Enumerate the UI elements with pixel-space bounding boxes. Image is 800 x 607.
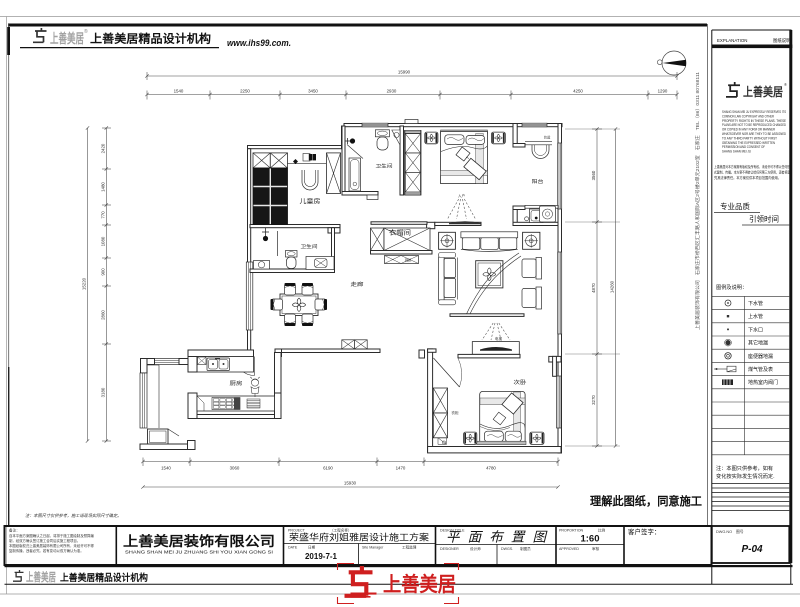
svg-text:其它地漏: 其它地漏 [748, 340, 768, 347]
svg-text:复制传播，违者必究。若有变动以双方确认为准。: 复制传播，违者必究。若有变动以双方确认为准。 [9, 548, 84, 553]
svg-text:DWG.NO: DWG.NO [716, 530, 732, 534]
svg-text:4780: 4780 [486, 466, 496, 471]
svg-text:上善美居精品设计机构: 上善美居精品设计机构 [60, 572, 148, 584]
svg-text:14260: 14260 [610, 280, 615, 293]
svg-text:电视: 电视 [495, 336, 503, 341]
svg-text:PLANS ARE NOT TO BE REPRODUCED: PLANS ARE NOT TO BE REPRODUCED CHANGED [722, 123, 787, 127]
svg-text:上水管: 上水管 [748, 313, 763, 320]
svg-text:770: 770 [100, 211, 105, 219]
svg-text:专业品质: 专业品质 [720, 201, 750, 211]
svg-text:下水口: 下水口 [748, 326, 763, 333]
svg-text:日期: 日期 [308, 545, 316, 550]
svg-text:1080: 1080 [100, 236, 105, 246]
svg-text:4870: 4870 [591, 283, 596, 293]
svg-text:P-04: P-04 [741, 544, 763, 555]
svg-text:PROPORTION: PROPORTION [559, 529, 583, 533]
svg-text:上善美居对本方案拥有版权及所有权，未经许可不得以任何形: 上善美居对本方案拥有版权及所有权，未经许可不得以任何形 [714, 164, 790, 169]
svg-text:煤气管及表: 煤气管及表 [748, 366, 773, 373]
svg-text:厨房: 厨房 [230, 380, 243, 387]
svg-text:审核: 审核 [592, 546, 600, 551]
svg-text:1480: 1480 [100, 182, 105, 192]
svg-text:卫生间: 卫生间 [376, 163, 393, 170]
svg-text:荣盛华府刘姐雅居设计施工方案: 荣盛华府刘姐雅居设计施工方案 [289, 532, 429, 543]
svg-text:究其法律责任。本方案仅供本项目范围内使用。: 究其法律责任。本方案仅供本项目范围内使用。 [714, 175, 781, 180]
svg-text:TO ANY THIRD PARTY WITHOUT FIR: TO ANY THIRD PARTY WITHOUT FIRST [722, 136, 777, 140]
svg-text:1470: 1470 [396, 466, 406, 471]
svg-text:EXPLANATION: EXPLANATION [717, 38, 747, 43]
svg-text:DATE: DATE [288, 546, 298, 550]
svg-text:入户: 入户 [458, 193, 466, 198]
svg-text:下水管: 下水管 [748, 300, 763, 307]
svg-text:15990: 15990 [398, 70, 411, 75]
svg-text:SHANG SHAN MEI JU: SHANG SHAN MEI JU [722, 150, 752, 154]
svg-text:1290: 1290 [658, 89, 668, 94]
svg-text:上善美居: 上善美居 [50, 31, 84, 46]
svg-text:走廊: 走廊 [351, 281, 364, 288]
svg-text:Site Manager: Site Manager [362, 546, 384, 550]
svg-text:上善美居装饰有限公司: 上善美居装饰有限公司 [123, 533, 275, 549]
svg-text:上善美居: 上善美居 [26, 570, 56, 584]
svg-text:3270: 3270 [591, 395, 596, 405]
svg-text:制图员: 制图员 [520, 546, 531, 551]
svg-text:上善美居: 上善美居 [743, 84, 783, 99]
svg-text:图例及说明：: 图例及说明： [716, 283, 747, 291]
svg-text:比例: 比例 [598, 528, 606, 533]
svg-text:次卧: 次卧 [514, 379, 527, 386]
svg-text:备注：: 备注： [9, 528, 20, 533]
svg-text:6190: 6190 [323, 466, 333, 471]
svg-text:制，经双方确认签订施工合同后实施工程项目。: 制，经双方确认签订施工合同后实施工程项目。 [9, 538, 80, 543]
svg-text:衣帽间: 衣帽间 [389, 228, 411, 237]
svg-text:PROPERTY RIGHTS IN THESE PLANS: PROPERTY RIGHTS IN THESE PLANS. THESE [722, 119, 786, 123]
svg-text:WHATSOEVER NOR ARE THEY TO BE: WHATSOEVER NOR ARE THEY TO BE ASSIGNED [722, 132, 787, 136]
svg-text:2420: 2420 [100, 143, 105, 153]
svg-text:上善美居: 上善美居 [383, 572, 456, 596]
svg-text:2930: 2930 [387, 89, 397, 94]
svg-text:变化按实际发生情况而定.: 变化按实际发生情况而定. [716, 472, 775, 480]
svg-text:自本平面方案图确认之日起，将排于施工图绘制及预算编: 自本平面方案图确认之日起，将排于施工图绘制及预算编 [9, 533, 94, 538]
svg-text:COMMON LAW COPYRIGHT AND OTHER: COMMON LAW COPYRIGHT AND OTHER [722, 114, 775, 118]
svg-text:1540: 1540 [174, 89, 184, 94]
svg-text:4250: 4250 [573, 89, 583, 94]
svg-text:鞋柜: 鞋柜 [405, 258, 412, 263]
svg-text:阳台: 阳台 [532, 178, 544, 185]
svg-text:上善美居装饰有限公司 石家庄市桥西区汇丰路人和国际A区2号楼: 上善美居装饰有限公司 石家庄市桥西区汇丰路人和国际A区2号楼2单元2102室 石… [694, 72, 701, 330]
svg-text:900: 900 [100, 268, 105, 276]
svg-text:15930: 15930 [344, 481, 357, 486]
svg-text:OR COPIED IN ANY FORM OR MANNE: OR COPIED IN ANY FORM OR MANNER [722, 128, 776, 132]
svg-text:SHANG SHAN MEI JU EXPRESSLY RE: SHANG SHAN MEI JU EXPRESSLY RESERVES ITS [722, 110, 786, 114]
svg-text:1:60: 1:60 [580, 534, 599, 545]
svg-text:3180: 3180 [100, 387, 105, 397]
svg-text:儿童房: 儿童房 [300, 198, 321, 206]
svg-text:设计师: 设计师 [470, 546, 481, 551]
svg-text:3560: 3560 [591, 170, 596, 180]
svg-text:工程监理: 工程监理 [402, 545, 417, 550]
svg-text:®: ® [84, 28, 88, 35]
svg-text:SHANG SHAN MEI JU ZHUANG SHI Y: SHANG SHAN MEI JU ZHUANG SHI YOU XIAN GO… [125, 550, 273, 555]
svg-text:APPROVED: APPROVED [559, 547, 579, 551]
svg-text:2250: 2250 [240, 89, 250, 94]
svg-text:2860: 2860 [100, 310, 105, 320]
svg-text:PERMISSION AND CONSENT OF: PERMISSION AND CONSENT OF [722, 145, 765, 149]
svg-text:2019-7-1: 2019-7-1 [305, 552, 338, 561]
svg-text:图号: 图号 [736, 529, 744, 534]
svg-text:衣柜: 衣柜 [451, 410, 459, 415]
svg-text:注：本图尺寸仅供参考，施工请现场实际尺寸确定。: 注：本图尺寸仅供参考，施工请现场实际尺寸确定。 [25, 513, 121, 518]
svg-text:地热室内阀门: 地热室内阀门 [748, 379, 778, 386]
svg-text:注：本图只供参考，如有: 注：本图只供参考，如有 [716, 464, 773, 472]
svg-text:DWGS.: DWGS. [501, 547, 513, 551]
svg-text:上善美居精品设计机构: 上善美居精品设计机构 [90, 32, 212, 46]
svg-text:www.ihs99.com.: www.ihs99.com. [227, 38, 291, 49]
svg-text:台盆: 台盆 [544, 135, 551, 140]
svg-text:®: ® [784, 82, 787, 87]
svg-text:卫生间: 卫生间 [301, 243, 318, 250]
svg-text:引领时间: 引领时间 [749, 214, 779, 224]
svg-text:1540: 1540 [161, 466, 171, 471]
svg-text:理解此图纸，同意施工: 理解此图纸，同意施工 [590, 494, 702, 508]
svg-text:OBTAINING THE EXPRESSED WRITTE: OBTAINING THE EXPRESSED WRITTEN [722, 141, 776, 145]
svg-text:3060: 3060 [230, 466, 240, 471]
svg-text:式复制、传播。本方案不得转让给任何第三方使用，违者将追: 式复制、传播。本方案不得转让给任何第三方使用，违者将追 [714, 169, 790, 174]
svg-text:3450: 3450 [308, 89, 318, 94]
svg-text:15220: 15220 [82, 277, 87, 290]
svg-text:客户签字：: 客户签字： [628, 527, 661, 536]
svg-text:DESIGNER: DESIGNER [440, 547, 459, 551]
svg-text:图纸说明: 图纸说明 [773, 37, 791, 44]
svg-text:本图纸版权归上善美居装饰有限公司所有，未经许可不得: 本图纸版权归上善美居装饰有限公司所有，未经许可不得 [9, 543, 94, 548]
svg-text:座便器地漏: 座便器地漏 [748, 353, 773, 360]
